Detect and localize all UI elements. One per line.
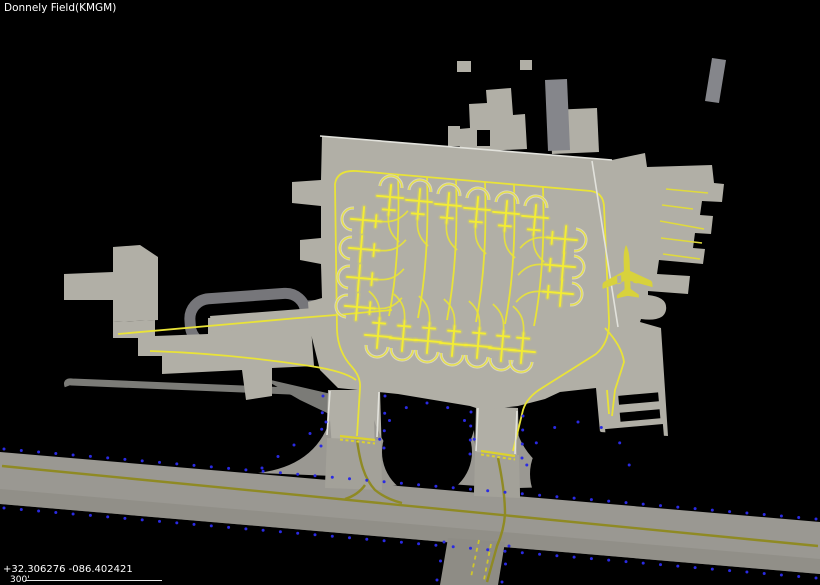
- taxiway-edge-light: [469, 425, 472, 428]
- taxiway-edge-light: [642, 503, 645, 506]
- taxiway-edge-light: [600, 426, 603, 429]
- taxiway-edge-light: [521, 551, 524, 554]
- taxiway-edge-light: [625, 560, 628, 563]
- taxiway-edge-light: [521, 443, 524, 446]
- taxiway-edge-light: [378, 438, 381, 441]
- taxiway-edge-light: [309, 432, 312, 435]
- taxiway-edge-light: [573, 556, 576, 559]
- taxiway-edge-light: [642, 562, 645, 565]
- taxiway-edge-light: [522, 415, 525, 418]
- taxiway-edge-light: [469, 453, 472, 456]
- taxiway-edge-light: [37, 451, 40, 454]
- taxiway-edge-light: [158, 461, 161, 464]
- taxiway-edge-light: [469, 547, 472, 550]
- taxiway-edge-light: [123, 458, 126, 461]
- building: [520, 60, 532, 70]
- taxiway-edge-light: [20, 449, 23, 452]
- west-ramp-block: [113, 245, 158, 322]
- taxiway-edge-light: [417, 542, 420, 545]
- taxiway-edge-light: [573, 497, 576, 500]
- taxiway-edge-light: [501, 581, 504, 584]
- taxiway-edge-light: [452, 545, 455, 548]
- taxiway-edge-light: [279, 530, 282, 533]
- taxiway-edge-light: [388, 419, 391, 422]
- taxiway-edge-light: [193, 464, 196, 467]
- taxiway-edge-light: [473, 438, 476, 441]
- taxiway-edge-light: [89, 514, 92, 517]
- taxiway-edge-light: [320, 428, 323, 431]
- taxiway-edge-light: [434, 485, 437, 488]
- taxiway-edge-light: [555, 495, 558, 498]
- taxiway-edge-light: [426, 402, 429, 405]
- taxiway-edge-light: [797, 516, 800, 519]
- taxiway-edge-light: [365, 479, 368, 482]
- taxiway-edge-light: [763, 513, 766, 516]
- terminal-tower: [545, 79, 570, 151]
- taxiway-edge-light: [383, 480, 386, 483]
- taxiway-edge-light: [158, 520, 161, 523]
- taxiway-edge-light: [279, 471, 282, 474]
- taxiway-edge-light: [400, 482, 403, 485]
- taxiway-edge-light: [463, 419, 466, 422]
- taxiway-edge-light: [54, 511, 57, 514]
- taxiway-edge-light: [141, 459, 144, 462]
- taxiway-edge-light: [469, 488, 472, 491]
- taxiway-edge-light: [745, 571, 748, 574]
- taxiway-edge-light: [384, 395, 387, 398]
- taxiway-edge-light: [443, 541, 446, 544]
- taxiway-edge-light: [261, 467, 264, 470]
- taxiway-edge-light: [439, 560, 442, 563]
- taxiway-edge-light: [625, 501, 628, 504]
- taxiway-edge-light: [175, 462, 178, 465]
- taxiway-edge-light: [590, 557, 593, 560]
- taxiway-edge-light: [210, 524, 213, 527]
- taxiway-edge-light: [555, 554, 558, 557]
- connector-1-lower: [325, 438, 382, 490]
- taxiway-edge-light: [123, 517, 126, 520]
- taxiway-edge-light: [538, 494, 541, 497]
- taxiway-edge-light: [175, 521, 178, 524]
- taxiway-edge-light: [711, 509, 714, 512]
- taxiway-edge-light: [314, 533, 317, 536]
- taxiway-edge-light: [538, 553, 541, 556]
- taxiway-edge-light: [331, 476, 334, 479]
- airport-map-viewer: Donnely Field(KMGM) +32.306276 -086.4024…: [0, 0, 820, 585]
- taxiway-edge-light: [780, 574, 783, 577]
- taxiway-edge-light: [694, 566, 697, 569]
- taxiway-edge-light: [676, 565, 679, 568]
- taxiway-edge-light: [535, 441, 538, 444]
- taxiway-edge-light: [72, 513, 75, 516]
- taxiway-edge-light: [728, 569, 731, 572]
- taxiway-edge-light: [434, 544, 437, 547]
- taxiway-edge-light: [452, 486, 455, 489]
- taxiway-edge-light: [607, 559, 610, 562]
- taxiway-edge-light: [244, 468, 247, 471]
- taxiway-edge-light: [446, 406, 449, 409]
- taxiway-edge-light: [106, 515, 109, 518]
- taxiway-edge-light: [577, 421, 580, 424]
- taxiway-edge-light: [504, 563, 507, 566]
- building-notch: [477, 130, 490, 146]
- taxiway-edge-light: [296, 473, 299, 476]
- taxiway-edge-light: [469, 439, 472, 442]
- taxiway-edge-light: [711, 568, 714, 571]
- taxiway-edge-light: [321, 411, 324, 414]
- taxiway-edge-light: [3, 448, 6, 451]
- taxiway-edge-light: [325, 421, 328, 424]
- taxiway-edge-light: [262, 529, 265, 532]
- taxiway-edge-light: [486, 489, 489, 492]
- taxiway-edge-light: [504, 550, 507, 553]
- taxiway-edge-light: [508, 545, 511, 548]
- taxiway-edge-light: [348, 477, 351, 480]
- taxiway-edge-light: [694, 507, 697, 510]
- taxiway-edge-light: [618, 441, 621, 444]
- taxiway-edge-light: [659, 504, 662, 507]
- taxiway-edge-light: [210, 465, 213, 468]
- taxiway-edge-light: [763, 572, 766, 575]
- taxiway-edge-light: [417, 483, 420, 486]
- west-ramp-arm: [64, 272, 113, 300]
- taxiway-edge-light: [293, 444, 296, 447]
- taxiway-edge-light: [141, 518, 144, 521]
- taxiway-edge-light: [193, 523, 196, 526]
- taxiway-edge-light: [797, 575, 800, 578]
- taxiway-edge-light: [400, 541, 403, 544]
- taxiway-edge-light: [348, 536, 351, 539]
- taxiway-edge-light: [780, 515, 783, 518]
- taxiway-edge-light: [37, 510, 40, 513]
- taxiway-edge-light: [470, 411, 473, 414]
- taxiway-edge-light: [3, 507, 6, 510]
- taxiway-edge-light: [383, 429, 386, 432]
- bay-cutout: [382, 407, 472, 497]
- taxiway-edge-light: [314, 474, 317, 477]
- building: [448, 126, 460, 146]
- taxiway-edge-light: [227, 526, 230, 529]
- terminal-building: [459, 88, 527, 152]
- taxiway-edge-light: [553, 426, 556, 429]
- map-canvas[interactable]: [0, 0, 820, 585]
- taxiway-edge-light: [322, 395, 325, 398]
- taxiway-edge-light: [815, 518, 818, 521]
- taxiway-edge-light: [815, 577, 818, 580]
- taxiway-edge-light: [227, 467, 230, 470]
- taxiway-edge-light: [262, 470, 265, 473]
- taxiway-edge-light: [525, 464, 528, 467]
- scale-bar: [25, 580, 162, 581]
- taxiway-edge-light: [244, 527, 247, 530]
- taxiway-edge-light: [676, 506, 679, 509]
- taxiway-edge-light: [607, 500, 610, 503]
- taxiway-edge-light: [20, 508, 23, 511]
- taxiway-edge-light: [89, 455, 92, 458]
- taxiway-edge-light: [72, 454, 75, 457]
- taxiway-edge-light: [365, 538, 368, 541]
- taxiway-edge-light: [486, 548, 489, 551]
- taxiway-edge-light: [521, 429, 524, 432]
- taxiway-edge-light: [745, 512, 748, 515]
- taxiway-edge-light: [728, 510, 731, 513]
- taxiway-edge-light: [54, 452, 57, 455]
- taxiway-edge-light: [628, 464, 631, 467]
- taxiway-edge-light: [296, 532, 299, 535]
- taxiway-edge-light: [504, 491, 507, 494]
- taxiway-edge-light: [331, 535, 334, 538]
- airport-map: [0, 0, 820, 585]
- taxiway-edge-light: [383, 539, 386, 542]
- taxiway-edge-light: [590, 498, 593, 501]
- taxiway-edge-light: [521, 492, 524, 495]
- taxiway-edge-light: [277, 455, 280, 458]
- taxiway-edge-light: [383, 412, 386, 415]
- taxiway-edge-light: [106, 456, 109, 459]
- taxiway-edge-light: [383, 447, 386, 450]
- runway-stub: [440, 538, 505, 585]
- taxiway-edge-light: [320, 445, 323, 448]
- taxiway-edge-light: [521, 457, 524, 460]
- taxiway-edge-light: [659, 563, 662, 566]
- airport-title: Donnely Field(KMGM): [4, 2, 116, 14]
- building: [457, 61, 471, 72]
- taxiway-edge-light: [436, 579, 439, 582]
- outbuilding: [705, 58, 726, 103]
- taxiway-edge-light: [405, 406, 408, 409]
